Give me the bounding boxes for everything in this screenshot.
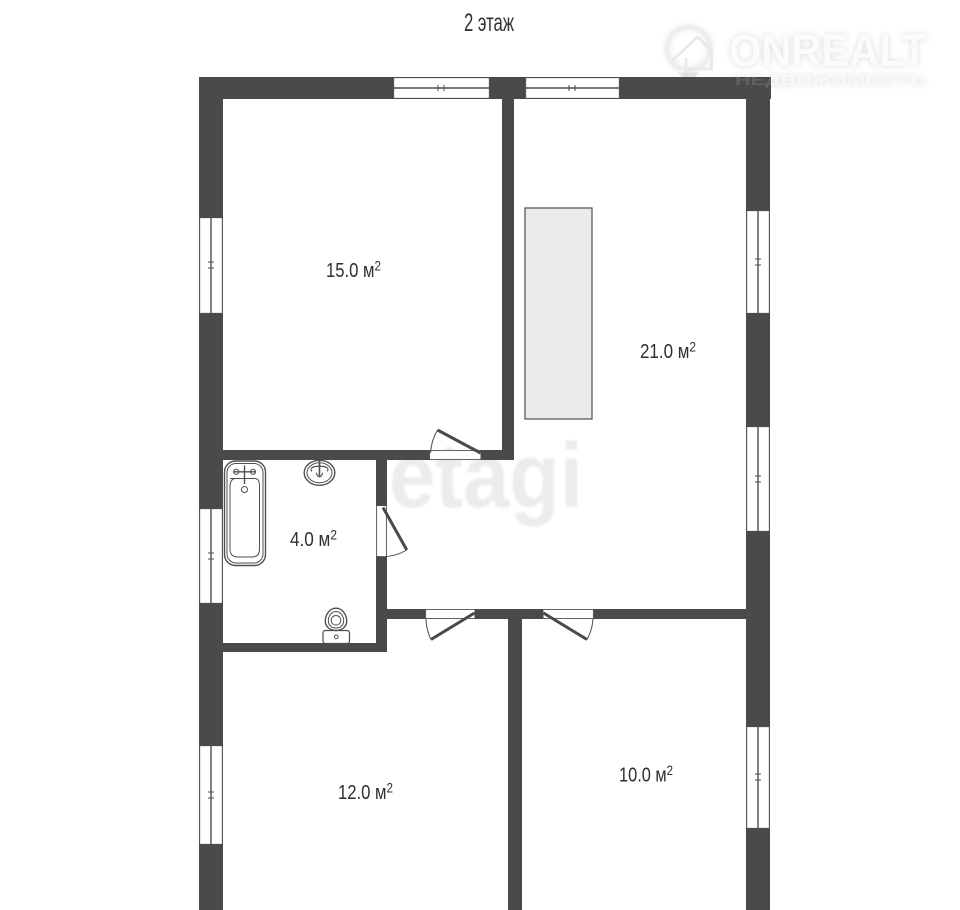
svg-text:ONREALT: ONREALT: [729, 25, 927, 76]
svg-text:12.0 м2: 12.0 м2: [338, 780, 393, 805]
svg-text:2 этаж: 2 этаж: [464, 9, 514, 37]
svg-text:21.0 м2: 21.0 м2: [640, 339, 696, 364]
svg-text:10.0 м2: 10.0 м2: [619, 762, 673, 787]
svg-text:15.0 м2: 15.0 м2: [326, 258, 381, 283]
svg-text:НЕДВИЖИМОСТЬ: НЕДВИЖИМОСТЬ: [735, 72, 926, 89]
svg-text:4.0 м2: 4.0 м2: [290, 527, 337, 552]
svg-text:etagi: etagi: [389, 425, 583, 527]
